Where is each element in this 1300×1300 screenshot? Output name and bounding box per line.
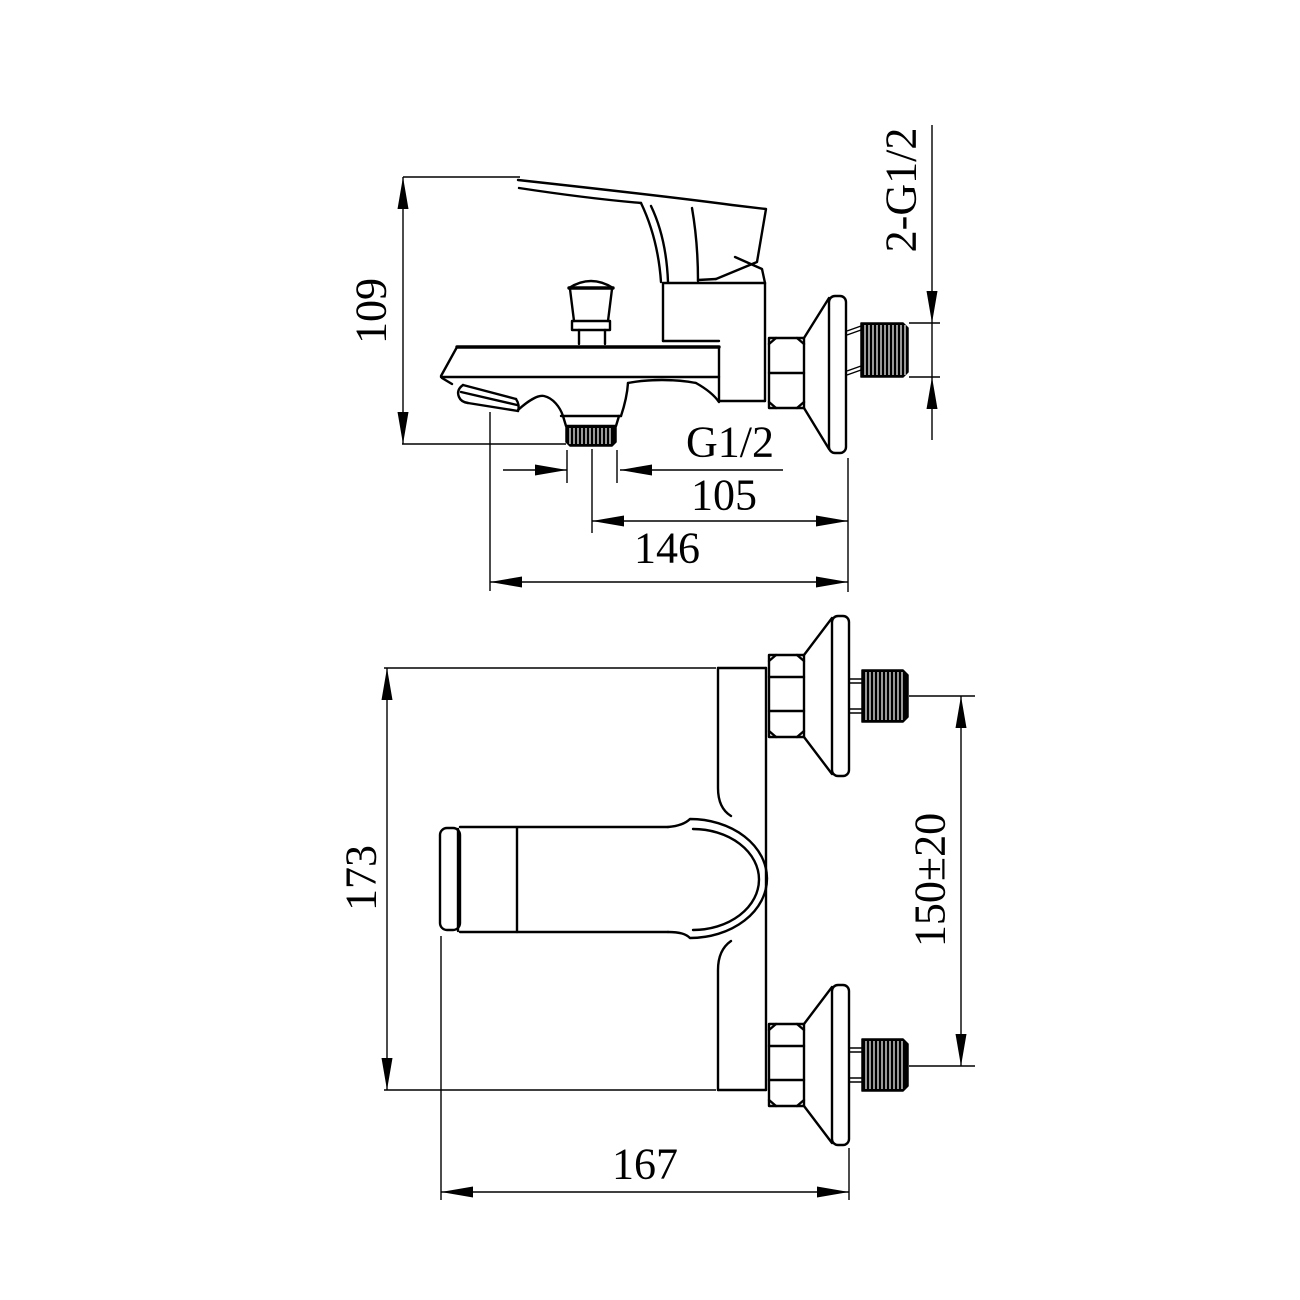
- faucet-technical-drawing: 109 2-G1/2 G1/2 105: [0, 0, 1300, 1300]
- dim-109-label: 109: [347, 278, 396, 344]
- dimension-109: 109: [347, 177, 567, 444]
- dimension-167: 167: [441, 936, 849, 1200]
- dim-150-20-label: 150±20: [906, 813, 955, 947]
- wall-union-top: [769, 616, 908, 776]
- dim-167-label: 167: [612, 1140, 678, 1189]
- technical-drawing-page: 109 2-G1/2 G1/2 105: [0, 0, 1300, 1300]
- escutcheon-flange-bottom: [804, 985, 849, 1145]
- wall-union-bottom: [769, 985, 908, 1145]
- hex-nut-bottom: [769, 1024, 804, 1106]
- wall-union-side: [769, 296, 908, 453]
- hex-nut-side: [769, 338, 804, 408]
- pipe-stub-bottom: [849, 1048, 862, 1082]
- hex-nut-top: [769, 655, 804, 737]
- lever-handle-side: [518, 180, 766, 283]
- inlet-thread-side: [861, 323, 908, 377]
- side-view: 109 2-G1/2 G1/2 105: [347, 125, 941, 592]
- pipe-stub-top: [849, 679, 862, 713]
- dim-173-label: 173: [337, 845, 386, 911]
- dim-146-label: 146: [634, 524, 700, 573]
- front-view: 173 150±20 167: [337, 616, 976, 1200]
- diverter-knob: [569, 281, 613, 344]
- dimension-173: 173: [337, 668, 717, 1090]
- dim-2-g12-label: 2-G1/2: [877, 128, 926, 253]
- shower-outlet-thread: [566, 426, 616, 446]
- dim-g12-label: G1/2: [686, 418, 774, 467]
- dimension-146: 146: [490, 412, 848, 592]
- dimension-150-20: 150±20: [906, 696, 976, 1066]
- inlet-thread-bottom: [862, 1039, 908, 1091]
- dim-105-label: 105: [691, 471, 757, 520]
- escutcheon-flange-top: [804, 616, 849, 776]
- tub-spout: [441, 347, 719, 446]
- shower-outlet-boss: [561, 416, 621, 426]
- dimension-2-g12: 2-G1/2: [877, 125, 941, 440]
- pipe-stub-side: [847, 326, 861, 375]
- escutcheon-flange-side: [804, 296, 846, 453]
- inlet-thread-top: [862, 670, 908, 722]
- lever-handle-front: [440, 819, 767, 938]
- spout-aerator: [458, 385, 519, 411]
- mixer-body-side: [663, 283, 765, 401]
